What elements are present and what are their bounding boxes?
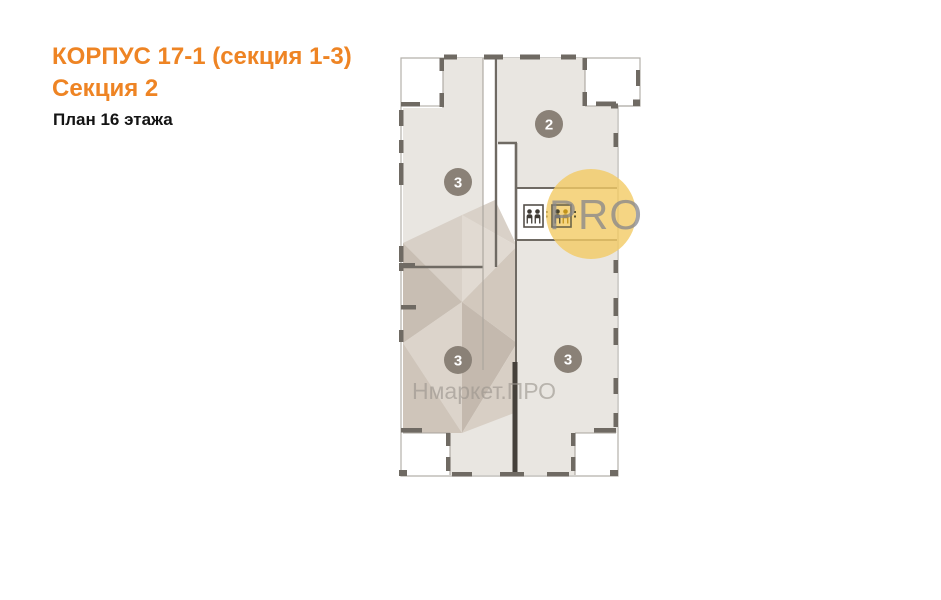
unit-badge[interactable]: 3 <box>554 345 582 373</box>
floor-plan: PRO 2 3 3 3 Нмаркет.ПРО <box>393 48 647 486</box>
building-title: КОРПУС 17-1 (секция 1-3) <box>52 42 352 72</box>
floor-plan-svg: PRO 2 3 3 3 Нмаркет.ПРО <box>393 48 647 486</box>
brand-watermark-text: Нмаркет.ПРО <box>412 378 556 404</box>
floor-title: План 16 этажа <box>53 110 352 130</box>
unit-badge[interactable]: 3 <box>444 168 472 196</box>
unit-number[interactable]: 3 <box>564 352 572 369</box>
unit-badge[interactable]: 2 <box>535 110 563 138</box>
plan-header: КОРПУС 17-1 (секция 1-3) Секция 2 План 1… <box>52 42 352 130</box>
unit-number[interactable]: 3 <box>454 353 462 370</box>
unit-badge[interactable]: 3 <box>444 346 472 374</box>
floorplan-page: КОРПУС 17-1 (секция 1-3) Секция 2 План 1… <box>0 0 941 600</box>
section-title: Секция 2 <box>52 74 352 104</box>
pro-watermark-text: PRO <box>549 191 643 238</box>
unit-number[interactable]: 2 <box>545 117 553 134</box>
unit-number[interactable]: 3 <box>454 175 462 192</box>
